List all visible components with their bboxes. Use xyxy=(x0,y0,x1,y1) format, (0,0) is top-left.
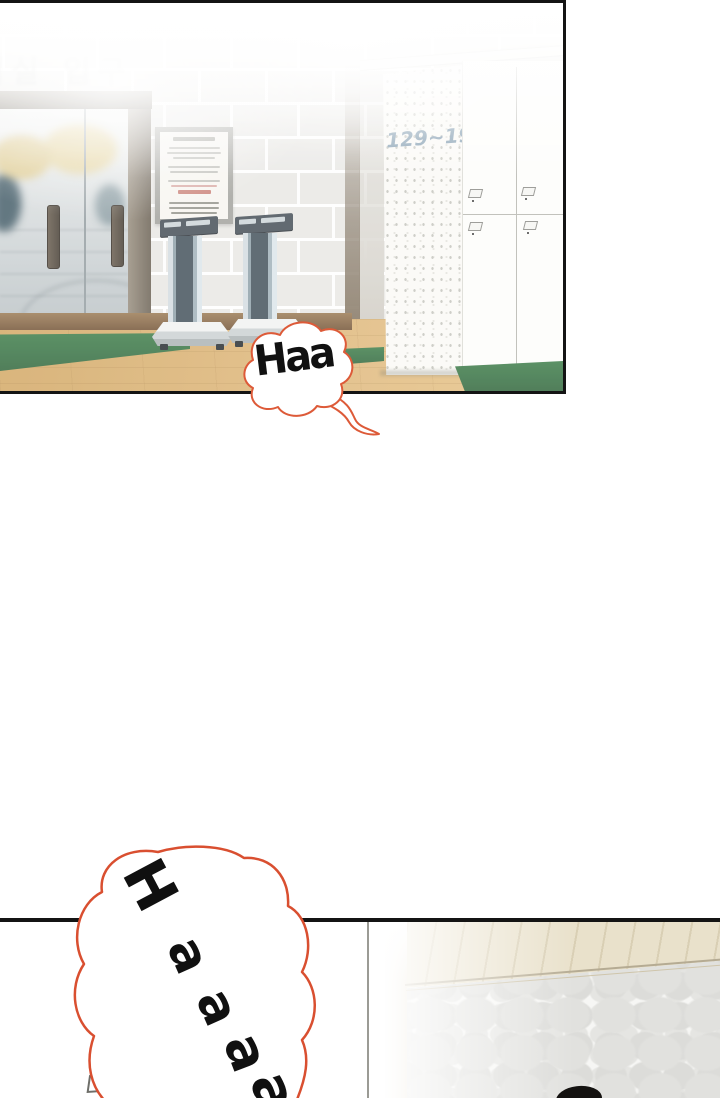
speech-text-haa: Haa xyxy=(251,327,335,385)
comic-page: 탈의실 입구 xyxy=(0,0,720,1098)
light-wash-left xyxy=(385,922,575,1098)
locker-door-edge xyxy=(367,922,369,1098)
